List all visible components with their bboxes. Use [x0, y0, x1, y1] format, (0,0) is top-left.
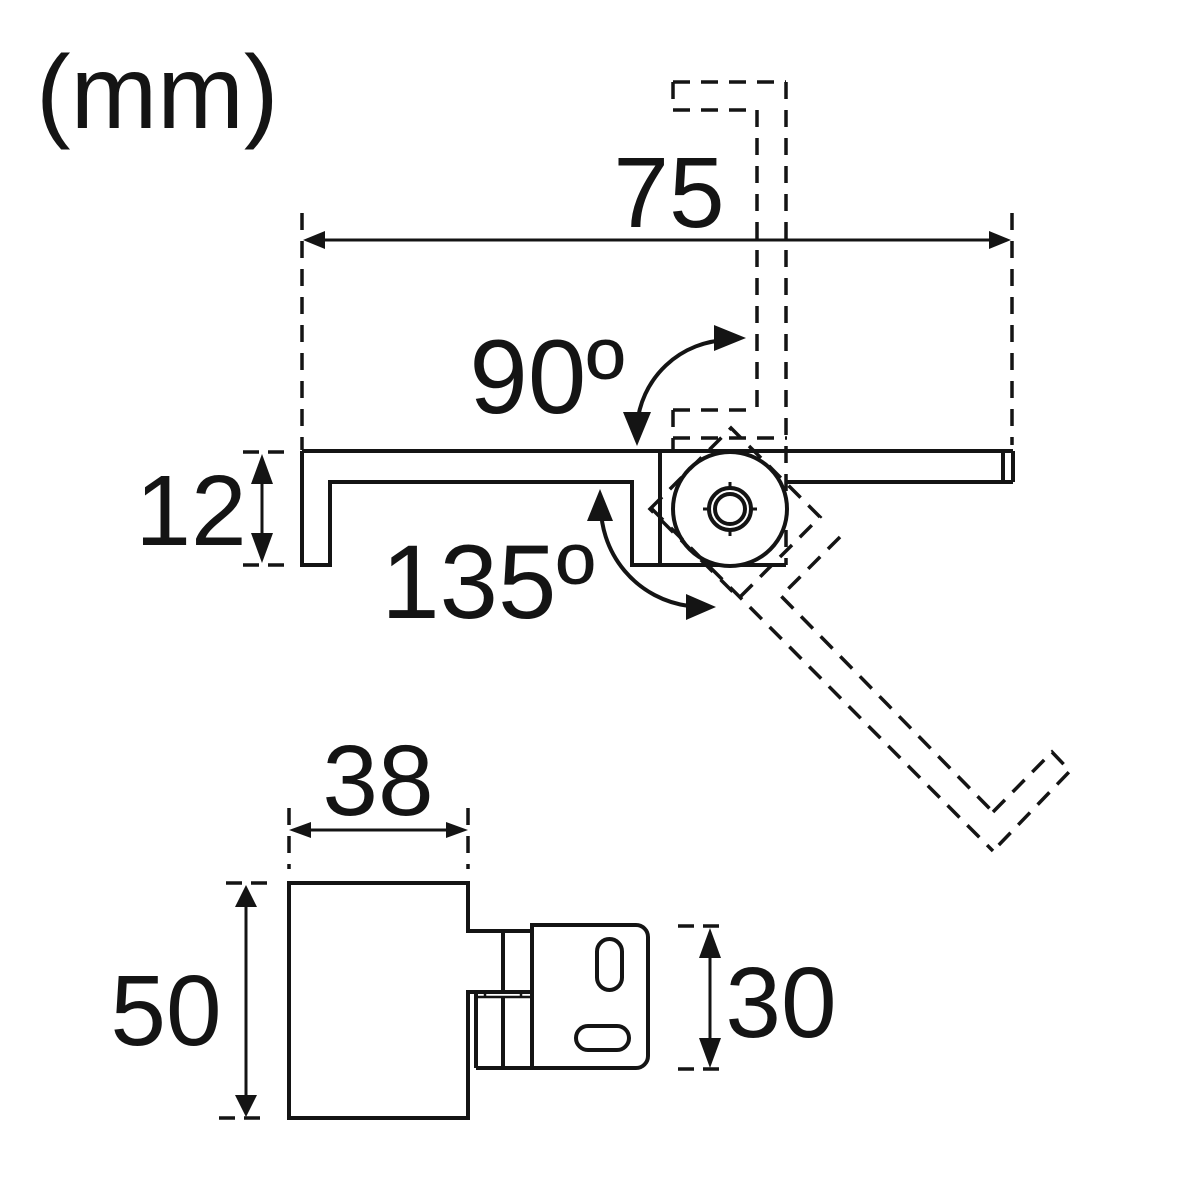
arrowhead-right-icon: [686, 594, 716, 620]
arrowhead-right-icon: [446, 822, 468, 838]
dimension-height-50: 50: [110, 883, 274, 1118]
rotated-arm-inner-edge: [781, 537, 993, 812]
side-view-drawing: 90º 135º 75: [135, 82, 1070, 851]
arc-90: [637, 340, 728, 426]
dim-75-label: 75: [613, 137, 724, 249]
dimension-plate-30: 30: [678, 926, 837, 1069]
dimension-width-75: 75: [302, 137, 1012, 450]
screw-slot-horizontal: [576, 1026, 629, 1050]
dimension-width-38: 38: [289, 725, 468, 869]
arrowhead-up-icon: [587, 489, 613, 521]
arrowhead-right-icon: [989, 231, 1011, 249]
front-view-drawing: 38 50 30: [110, 725, 836, 1118]
dim-50-label: 50: [110, 955, 221, 1067]
dim-12-label: 12: [135, 455, 246, 567]
dimension-channel-12: 12: [135, 452, 291, 567]
rotated-arm-outer-edge: [651, 508, 993, 851]
angle-135-label: 135º: [381, 524, 595, 641]
dim-30-label: 30: [725, 947, 836, 1059]
bracket-dimension-drawing: 90º 135º 75: [0, 0, 1200, 1200]
units-label: (mm): [36, 35, 279, 151]
dim-38-label: 38: [322, 725, 433, 837]
technical-drawing-page: 90º 135º 75: [0, 0, 1200, 1200]
arrowhead-down-icon: [235, 1095, 257, 1117]
arrowhead-up-icon: [235, 885, 257, 907]
pivot-bore-circle: [715, 494, 745, 524]
angle-90-label: 90º: [469, 319, 624, 436]
arrowhead-right-icon: [714, 325, 746, 351]
arrowhead-down-icon: [623, 412, 651, 446]
rotated-arm-hook-end: [993, 752, 1070, 851]
arrowhead-down-icon: [251, 533, 273, 563]
screw-slot-vertical: [597, 939, 622, 990]
rotation-arc-90: 90º: [469, 319, 746, 446]
hinge-knuckles: [476, 931, 532, 1068]
body-outline: [289, 883, 532, 1118]
arrowhead-up-icon: [699, 928, 721, 958]
arrowhead-left-icon: [289, 822, 311, 838]
arrowhead-left-icon: [303, 231, 325, 249]
wall-plate-outline: [532, 925, 648, 1068]
hinge-pin-seam: [476, 992, 532, 997]
arrowhead-down-icon: [699, 1038, 721, 1068]
arrowhead-up-icon: [251, 454, 273, 484]
